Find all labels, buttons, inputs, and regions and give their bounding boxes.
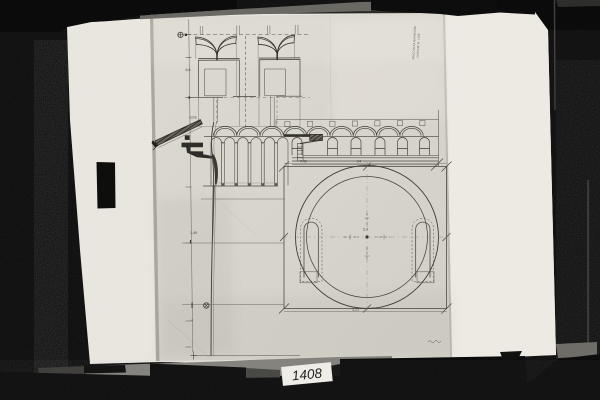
- svg-text:4: 4: [191, 319, 193, 323]
- svg-text:6,8: 6,8: [186, 68, 191, 72]
- svg-text:5,25: 5,25: [352, 308, 359, 312]
- svg-text:6,03: 6,03: [190, 116, 197, 120]
- svg-text:24: 24: [357, 159, 361, 163]
- svg-text:1,49: 1,49: [190, 231, 197, 235]
- svg-text:1408: 1408: [291, 366, 323, 384]
- svg-text:2,4: 2,4: [363, 228, 368, 232]
- svg-text:7,40: 7,40: [300, 159, 307, 163]
